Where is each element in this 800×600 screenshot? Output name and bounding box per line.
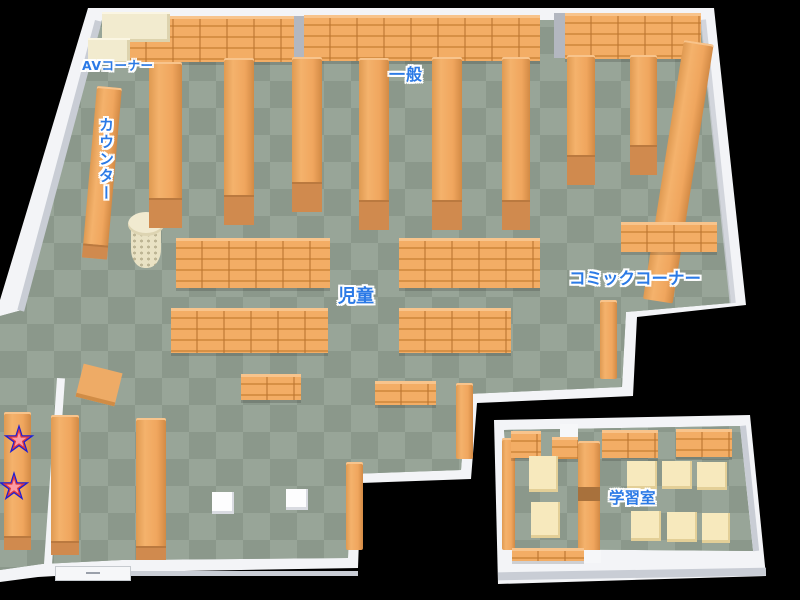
bookshelf-children-row <box>399 308 511 353</box>
study-table <box>702 513 730 543</box>
bookshelf-study-top <box>602 430 658 458</box>
bookshelf-step <box>600 300 617 379</box>
shelf-endcap <box>149 198 182 228</box>
bookshelf-column <box>149 62 182 228</box>
bookshelf-children-row <box>176 238 330 288</box>
bookshelf-column <box>51 415 79 555</box>
label-comic-corner: コミックコーナー <box>569 265 701 289</box>
bookshelf-children-row <box>399 238 540 288</box>
counter-end <box>82 243 108 259</box>
star-marker-2 <box>0 471 30 503</box>
bookshelf-step <box>346 462 363 550</box>
study-table <box>631 511 661 541</box>
study-table <box>662 461 692 489</box>
shelf-endcap <box>224 195 254 225</box>
divider-gap <box>578 487 600 501</box>
bookshelf-column <box>630 55 657 175</box>
bookshelf-low <box>241 374 301 400</box>
bookshelf-comic-corner <box>621 222 717 252</box>
study-table <box>667 512 697 542</box>
bookshelf-study-bottom <box>512 548 584 561</box>
shelf-endcap <box>359 200 389 230</box>
bookshelf-column <box>136 418 166 560</box>
study-table <box>627 461 657 489</box>
study-divider-shelf <box>578 441 600 553</box>
bookshelf-column <box>292 57 322 212</box>
study-table <box>531 502 560 538</box>
bookshelf-top-row-c <box>565 13 701 59</box>
shelf-endcap <box>567 155 595 185</box>
door-line <box>86 572 100 574</box>
study-table <box>697 462 727 490</box>
bookshelf-study-top <box>676 429 732 457</box>
bookshelf-children-row <box>171 308 328 353</box>
bookshelf-low <box>375 381 436 405</box>
shelf-endcap <box>630 145 657 175</box>
label-counter: カウンター <box>96 117 117 227</box>
label-study-room: 学習室 <box>609 486 656 508</box>
bookshelf-column <box>359 58 389 230</box>
shelf-endcap <box>136 546 166 560</box>
entrance-door <box>55 566 131 581</box>
floor-box <box>286 489 308 510</box>
shelf-endcap <box>432 200 462 230</box>
label-children: 児童 <box>338 282 374 308</box>
shelf-endcap <box>292 182 322 212</box>
bookshelf-column <box>432 57 462 230</box>
bookshelf-column <box>502 57 530 230</box>
shelf-endcap <box>502 200 530 230</box>
shelf-endcap <box>4 536 31 550</box>
label-av-corner: AVコーナー <box>82 55 154 74</box>
bookshelf-column <box>224 58 254 225</box>
bookshelf-top-row-b <box>304 15 540 61</box>
study-room-door <box>584 550 601 563</box>
library-floor-map: AVコーナー 一般 カウンター 児童 コミックコーナー 学習室 <box>0 0 800 600</box>
bookshelf-step <box>456 383 473 459</box>
study-table <box>529 456 558 492</box>
label-general: 一般 <box>389 61 423 85</box>
bookshelf-study <box>511 431 541 458</box>
shelf-endcap <box>51 541 79 555</box>
floor-box <box>212 492 234 514</box>
bookshelf-column <box>567 55 595 185</box>
star-marker-1 <box>3 424 35 456</box>
bottom-wall-shade <box>120 571 358 576</box>
